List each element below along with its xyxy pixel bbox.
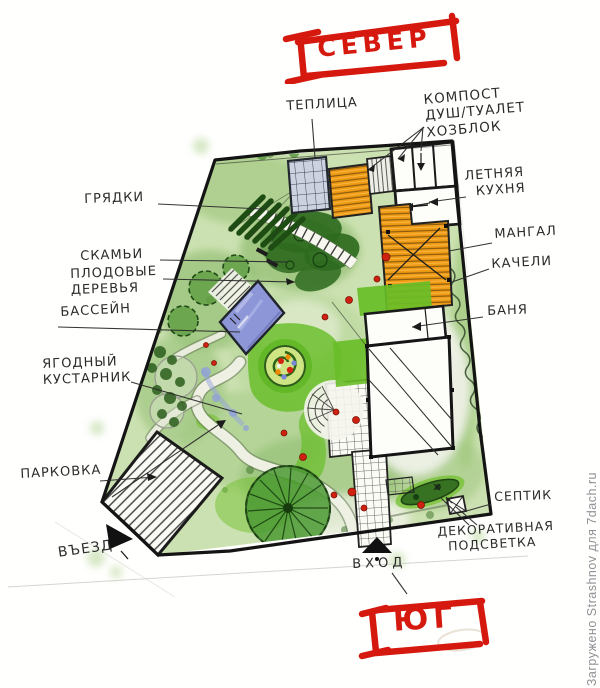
greenhouse [288, 157, 330, 213]
label-berry-bushes: ЯГОДНЫЙ КУСТАРНИК [42, 354, 132, 389]
label-summer-kitchen: ЛЕТНЯЯ КУХНЯ [464, 165, 526, 201]
label-benches: СКАМЬИ [80, 247, 144, 265]
label-decorative-lighting: ДЕКОРАТИВНАЯ ПОДСВЕТКА [437, 518, 555, 555]
label-entrance: ВХОД [352, 555, 407, 573]
label-compost-utility: КОМПОСТ ДУШ/ТУАЛЕТ ХОЗБЛОК [423, 83, 527, 141]
label-barbecue: МАНГАЛ [494, 224, 557, 243]
label-septic: СЕПТИК [494, 487, 552, 504]
compass-north: СЕВЕР [276, 12, 472, 84]
south-label: ЮГ [392, 600, 459, 639]
compass-south: ЮГ [358, 590, 498, 662]
label-bathhouse: БАНЯ [487, 303, 528, 320]
garden-plan-page: СЕВЕР ЮГ ТЕПЛИЦА КОМПОСТ ДУШ/ТУАЛЕТ ХОЗБ… [0, 0, 600, 688]
watermark: Загружено Strashnov для 7dach.ru [585, 472, 599, 686]
label-swing: КАЧЕЛИ [491, 254, 552, 273]
deck-top [329, 164, 372, 218]
label-garden-beds: ГРЯДКИ [84, 190, 144, 208]
label-fruit-trees: ПЛОДОВЫЕ ДЕРЕВЬЯ [70, 264, 158, 299]
hatched-shed [367, 156, 394, 194]
spiral-flowerbed [261, 342, 309, 390]
